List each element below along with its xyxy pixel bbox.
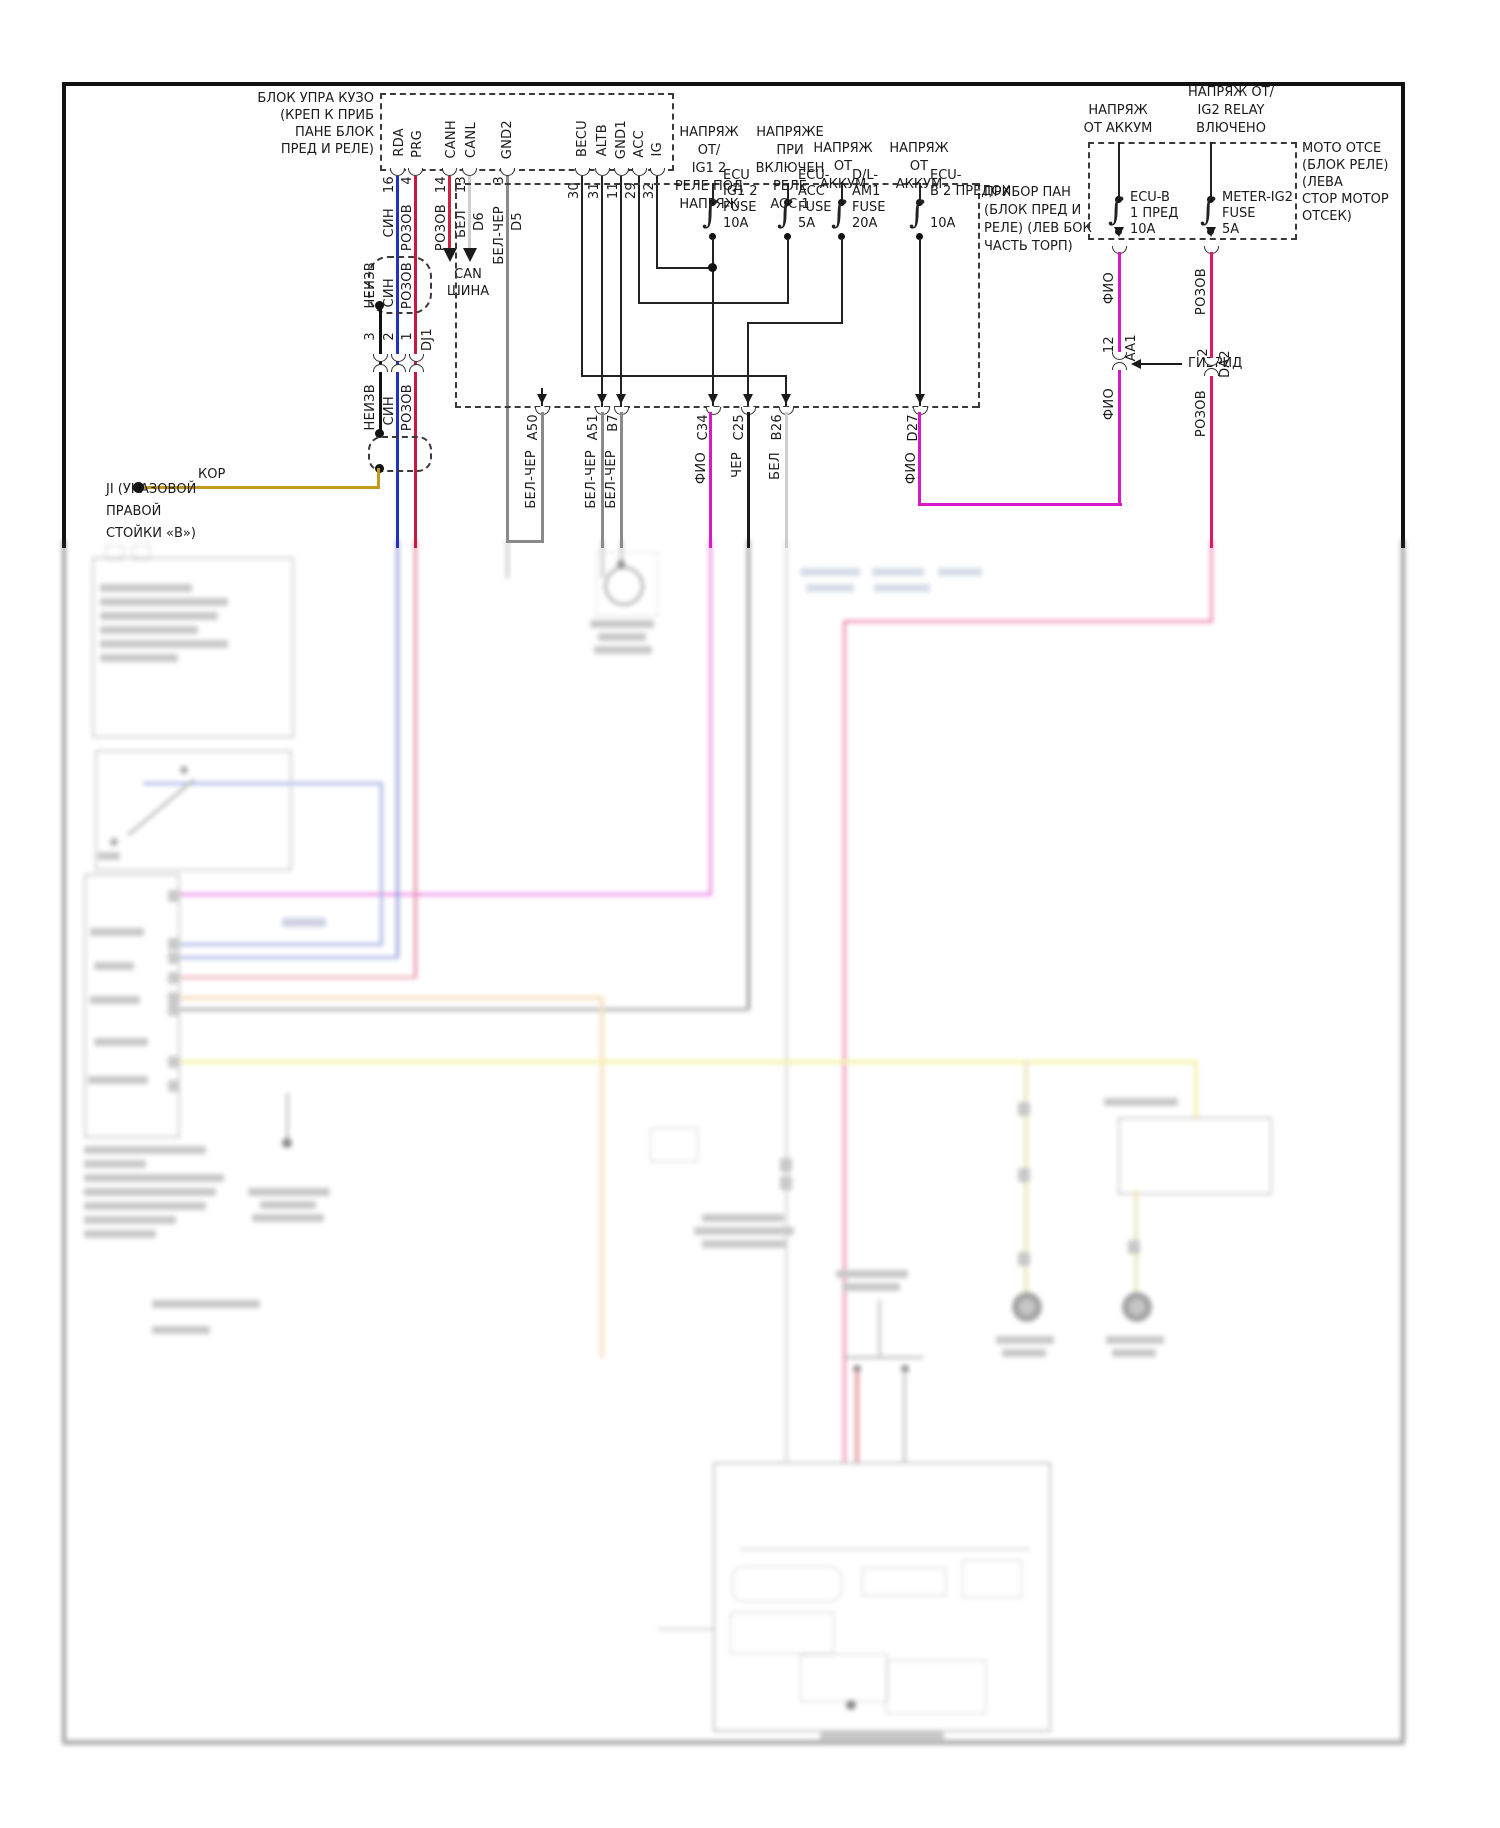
blurred-lower-diagram <box>0 0 1500 1828</box>
wiring-diagram-page: БЛОК УПРА КУЗО (КРЕП К ПРИБ ПАНЕ БЛОК ПР… <box>0 0 1500 1828</box>
